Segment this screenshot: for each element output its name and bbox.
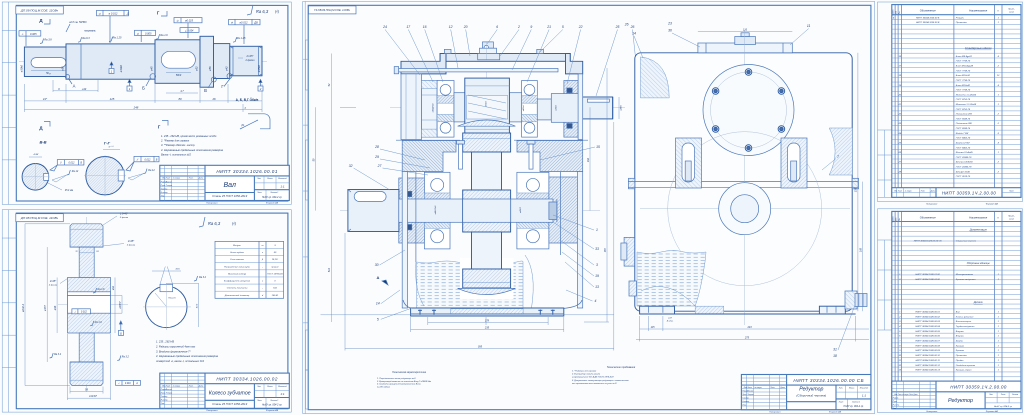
- svg-text:н2.8 тв. 50HRC: н2.8 тв. 50HRC: [69, 21, 87, 24]
- svg-text:Лист: Лист: [1008, 191, 1014, 193]
- svg-text:Ra 6,3: Ra 6,3: [256, 9, 269, 14]
- svg-text:1:1: 1:1: [280, 184, 285, 188]
- svg-text:4. Неуказанные предельные откл: 4. Неуказанные предельные отклонения раз…: [161, 148, 224, 152]
- svg-text:235: 235: [484, 327, 490, 330]
- svg-text:Редуктор: Редуктор: [799, 386, 823, 392]
- svg-text:2. Радиусы скруглений 4мм max: 2. Радиусы скруглений 4мм max: [155, 344, 196, 348]
- svg-text:ø35к6: ø35к6: [556, 104, 558, 110]
- svg-text:НибУ гр. 004-2 гр: НибУ гр. 004-2 гр: [844, 405, 864, 408]
- svg-text:ГОСТ 13755-81: ГОСТ 13755-81: [267, 273, 283, 275]
- svg-text:Утв.: Утв.: [161, 195, 165, 197]
- svg-text:16: 16: [423, 25, 427, 29]
- svg-text:ø232.2: ø232.2: [21, 303, 25, 312]
- svg-text:НибУ гр. 004-2 гр: НибУ гр. 004-2 гр: [262, 404, 282, 407]
- svg-text:Стандартные изделия: Стандартные изделия: [965, 47, 992, 50]
- svg-text:Т.контр.: Т.контр.: [161, 396, 168, 398]
- svg-text:Иванов: Иванов: [747, 391, 753, 393]
- svg-text:Техническая характеристика: Техническая характеристика: [392, 371, 427, 374]
- svg-text:Вал: Вал: [223, 182, 235, 189]
- svg-text://: //: [59, 161, 62, 165]
- svg-text:Число зубьев: Число зубьев: [230, 252, 245, 254]
- svg-text:НИПТ 30359.1Ч.2.00.00: НИПТ 30359.1Ч.2.00.00: [950, 385, 1007, 390]
- svg-text:(Сборочный чертеж): (Сборочный чертеж): [796, 393, 826, 397]
- svg-text:115: 115: [651, 326, 655, 329]
- svg-text:НИПТ 30334.1026.00.08: НИПТ 30334.1026.00.08: [916, 344, 941, 347]
- svg-text:В: В: [204, 88, 207, 93]
- svg-text:Листов 1: Листов 1: [269, 400, 278, 402]
- svg-text:5: 5: [377, 317, 379, 321]
- svg-text:Прокладка: Прокладка: [956, 21, 968, 24]
- svg-text:нагревань: нагревань: [84, 30, 96, 33]
- svg-text:НИПТ 30334.1026.00.11: НИПТ 30334.1026.00.11: [916, 359, 941, 362]
- svg-text:ø52: ø52: [195, 66, 199, 71]
- svg-text:Масса: Масса: [267, 386, 272, 388]
- svg-text:26: 26: [211, 97, 216, 101]
- svg-text:5⁺⁰˙²: 5⁺⁰˙²: [109, 146, 114, 149]
- svg-text:⊥: ⊥: [118, 382, 120, 385]
- svg-text:2×45°: 2×45°: [246, 54, 254, 58]
- svg-text:НИПТ 30334.1026.00 В: НИПТ 30334.1026.00 В: [916, 21, 940, 24]
- svg-text:ø 0.012: ø 0.012: [109, 12, 118, 16]
- svg-text:248: 248: [133, 106, 139, 110]
- svg-text:Ra 1.6: Ra 1.6: [160, 34, 168, 37]
- svg-text:Коэффициент смещения: Коэффициент смещения: [224, 280, 251, 283]
- svg-text:НИПТ 30334.1026.00.09: НИПТ 30334.1026.00.09: [916, 349, 941, 352]
- svg-text:Ra 1.6: Ra 1.6: [95, 321, 103, 324]
- svg-text:17: 17: [406, 25, 410, 29]
- svg-text:14: 14: [632, 32, 636, 36]
- svg-text:Ra 3.2: Ra 3.2: [54, 353, 62, 356]
- svg-text:Исходный контур: Исходный контур: [228, 272, 247, 275]
- svg-text:Подп.: Подп.: [189, 385, 194, 388]
- svg-text:НИПТ 30334.1026.00.01: НИПТ 30334.1026.00.01: [916, 310, 941, 313]
- svg-text:2 фаски: 2 фаски: [126, 243, 136, 246]
- svg-text:25: 25: [615, 25, 620, 29]
- svg-text:НибУ гр. 004-2 гр: НибУ гр. 004-2 гр: [994, 405, 1013, 408]
- svg-text:2 фаски: 2 фаски: [119, 216, 129, 219]
- svg-text:ø96: ø96: [53, 305, 57, 310]
- svg-text:Ra 12: Ra 12: [148, 169, 155, 172]
- svg-text:1. 235...262 HB, кроме мест ук: 1. 235...262 HB, кроме мест указанных ос…: [161, 134, 217, 138]
- svg-text:Копировал: Копировал: [926, 411, 938, 413]
- svg-text:Маслоуказатель: Маслоуказатель: [956, 274, 974, 276]
- svg-text:1:1: 1:1: [280, 392, 285, 396]
- svg-text:335: 335: [855, 187, 858, 192]
- svg-text:Болт М8-6gх22: Болт М8-6gх22: [956, 56, 973, 58]
- svg-text:Дата: Дата: [198, 178, 204, 180]
- svg-text:Ra 1.25: Ra 1.25: [237, 37, 246, 40]
- svg-text:ГОСТ 7798-70: ГОСТ 7798-70: [956, 70, 971, 72]
- svg-text:Болт М10-6gх28: Болт М10-6gх28: [956, 66, 974, 68]
- svg-text:13: 13: [595, 285, 599, 289]
- svg-text:21: 21: [546, 25, 551, 29]
- svg-text:правое: правое: [271, 266, 279, 268]
- svg-text:Лит.: Лит.: [988, 394, 993, 396]
- svg-text:0.012: 0.012: [145, 159, 152, 162]
- svg-text:Втулка: Втулка: [956, 331, 965, 333]
- svg-text:0.005: 0.005: [145, 31, 152, 35]
- svg-text:3. Допускается эксплуатация ре: 3. Допускается эксплуатация редуктора с …: [572, 379, 629, 382]
- svg-text:Наименование: Наименование: [969, 9, 987, 13]
- svg-text:Б: Б: [142, 86, 145, 91]
- svg-text:НИПТ 30334.1026.00.04: НИПТ 30334.1026.00.04: [916, 325, 941, 328]
- svg-text:отверстий +t, валов -t, осталь: отверстий +t, валов -t, остальных ±t/2: [156, 359, 205, 363]
- svg-text:Ra 1.6: Ra 1.6: [97, 288, 105, 291]
- svg-text:Модуль: Модуль: [233, 244, 242, 247]
- svg-text:ø48Н7/к6: ø48Н7/к6: [434, 205, 437, 215]
- svg-text:Т.контр.: Т.контр.: [742, 398, 749, 400]
- svg-text:А, Б, В,Г Ӧ6к/в: А, Б, В,Г Ӧ6к/в: [236, 97, 259, 102]
- svg-text:ø50к6: ø50к6: [486, 100, 488, 106]
- svg-text:⊥: ⊥: [21, 32, 24, 36]
- svg-text:275: 275: [744, 336, 750, 339]
- svg-text:Болт М12х32: Болт М12х32: [956, 75, 971, 77]
- svg-text:НИПТ 30334.1026.00.05: НИПТ 30334.1026.00.05: [916, 330, 941, 333]
- svg-text:ø42: ø42: [225, 66, 229, 71]
- svg-text:чание: чание: [1009, 218, 1014, 220]
- svg-text://: //: [136, 158, 139, 162]
- svg-text:ø92: ø92: [112, 285, 115, 290]
- svg-text:Б: Б: [120, 331, 122, 335]
- svg-text:2 фаски: 2 фаски: [245, 59, 256, 62]
- svg-text:Направление линии зуба: Направление линии зуба: [224, 266, 250, 268]
- svg-text:Крышка: Крышка: [956, 345, 965, 347]
- svg-text:12: 12: [449, 25, 453, 29]
- svg-text:А: А: [135, 382, 138, 385]
- svg-text:2×45°: 2×45°: [49, 280, 56, 283]
- svg-text:Угол наклона: Угол наклона: [230, 259, 245, 261]
- svg-text:Г: Г: [157, 11, 160, 16]
- svg-text:385: 385: [478, 345, 483, 348]
- svg-text:80: 80: [178, 97, 182, 101]
- svg-text:m: m: [262, 245, 264, 247]
- svg-text:Крышка глухая: Крышка глухая: [956, 370, 972, 372]
- svg-text:Подшипник 209: Подшипник 209: [956, 113, 973, 116]
- svg-text:Шайба: Шайба: [956, 340, 964, 343]
- svg-text:Н.контр.: Н.контр.: [161, 400, 169, 402]
- svg-text:26: 26: [630, 25, 635, 29]
- svg-text:Петров: Петров: [166, 393, 172, 395]
- svg-text:26: 26: [624, 23, 629, 27]
- svg-text:2. *Размер для справок: 2. *Размер для справок: [160, 139, 190, 143]
- svg-text:Приме-: Приме-: [1008, 9, 1015, 11]
- svg-text:50₍₃₎: 50₍₃₎: [46, 72, 51, 75]
- svg-text:Шайба 7 65Г: Шайба 7 65Г: [956, 132, 970, 135]
- svg-text:Отбойная крышка: Отбойная крышка: [956, 364, 976, 367]
- svg-text:β1: β1: [241, 123, 245, 127]
- svg-text:243: 243: [747, 326, 753, 329]
- svg-text:ø28k6: ø28k6: [621, 104, 623, 110]
- svg-text:Дата: Дата: [930, 190, 935, 192]
- svg-text:Лист: Лист: [746, 387, 752, 389]
- svg-text:Пробка: Пробка: [956, 360, 964, 362]
- svg-text:3. **Размер обеспеч. инстр.: 3. **Размер обеспеч. инстр.: [161, 143, 195, 147]
- svg-text:Дата: Дата: [779, 387, 785, 389]
- svg-text:0.016: 0.016: [125, 383, 131, 385]
- svg-text:110.67: 110.67: [89, 394, 97, 398]
- svg-text:Приме-: Приме-: [1008, 215, 1015, 217]
- svg-text:11: 11: [807, 24, 811, 28]
- svg-text:НИПТ 30359.1Ч.2.00.00: НИПТ 30359.1Ч.2.00.00: [942, 191, 997, 196]
- svg-text:Утв.: Утв.: [893, 408, 897, 410]
- svg-text:Иванов: Иванов: [166, 389, 172, 391]
- svg-text:Сталь 45 ГОСТ 1050-2013: Сталь 45 ГОСТ 1050-2013: [212, 194, 247, 198]
- svg-text:НИПТ 30334.1026.00.06: НИПТ 30334.1026.00.06: [916, 335, 941, 338]
- svg-text:Г3.ОВ.09.ПОЦ.М.СОЕ. 11ОВч: Г3.ОВ.09.ПОЦ.М.СОЕ. 11ОВч: [314, 8, 350, 12]
- svg-text:Сборочный чертеж: Сборочный чертеж: [956, 240, 977, 243]
- svg-text:Болт М12х42: Болт М12х42: [956, 84, 971, 87]
- svg-text:1. Передаточное число редуктор: 1. Передаточное число редуктора u=3: [377, 377, 416, 380]
- svg-text:ø0.025: ø0.025: [185, 19, 194, 23]
- svg-text:14: 14: [376, 302, 380, 306]
- svg-text:Обозначение: Обозначение: [920, 9, 936, 13]
- svg-text:Редукт.: Редукт.: [956, 16, 965, 19]
- svg-text:Манжета 1.1-35х58: Манжета 1.1-35х58: [956, 104, 977, 106]
- svg-text:Утв.: Утв.: [742, 405, 746, 407]
- svg-text:22: 22: [578, 25, 583, 29]
- svg-text:Штифт 8х30: Штифт 8х30: [956, 170, 971, 173]
- svg-text:от горизонтального положения н: от горизонтального положения на угол до …: [572, 382, 617, 385]
- svg-text:3: 3: [596, 263, 598, 267]
- svg-text:9: 9: [530, 25, 532, 29]
- svg-text:Т.контр.: Т.контр.: [161, 188, 168, 190]
- svg-text:Детали: Детали: [973, 301, 984, 304]
- svg-text:2 фаски: 2 фаски: [48, 283, 58, 286]
- svg-text:Копировал: Копировал: [770, 411, 782, 413]
- svg-text:18: 18: [833, 354, 837, 358]
- svg-text:Подп.: Подп.: [189, 177, 194, 180]
- svg-text:19: 19: [595, 274, 599, 278]
- svg-text:Обозначение: Обозначение: [920, 215, 936, 219]
- svg-text:8-В: 8-В: [273, 288, 277, 290]
- svg-text:0.012: 0.012: [81, 311, 88, 314]
- svg-text:4. Неуказанные предельные откл: 4. Неуказанные предельные отклонения раз…: [156, 354, 219, 358]
- svg-text:Масса: Масса: [267, 178, 272, 180]
- svg-text:Формат A4: Формат A4: [829, 410, 842, 413]
- svg-text:Г-Г: Г-Г: [104, 141, 111, 146]
- svg-text:Лит.: Лит.: [256, 386, 262, 388]
- svg-text:Лист: Лист: [1000, 394, 1006, 396]
- svg-text:Степень точности: Степень точности: [227, 288, 248, 290]
- svg-text:3. Впадины формовочные 7°: 3. Впадины формовочные 7°: [156, 349, 191, 353]
- svg-text:Формат A4: Формат A4: [986, 410, 999, 413]
- svg-text:Листов 1: Листов 1: [269, 192, 278, 194]
- svg-text:НИПТ 30334.1026.01.00: НИПТ 30334.1026.01.00: [916, 273, 941, 276]
- svg-text:Rmax 6: Rmax 6: [168, 298, 176, 300]
- svg-text:27: 27: [377, 164, 382, 168]
- svg-text:≤43: ≤43: [82, 87, 87, 91]
- svg-text:Сборочные единицы: Сборочные единицы: [967, 262, 990, 265]
- svg-text:155.51: 155.51: [272, 295, 279, 297]
- svg-text:ДВ: ДВ: [253, 21, 258, 25]
- svg-text:ГОСТ 8338-75: ГОСТ 8338-75: [956, 128, 971, 130]
- svg-text:Иванов: Иванов: [166, 181, 172, 183]
- svg-text:Документация: Документация: [969, 228, 988, 231]
- svg-text:Листов 1: Листов 1: [851, 401, 860, 403]
- svg-text:Ra 3.2: Ra 3.2: [122, 356, 130, 359]
- svg-text:29: 29: [374, 155, 379, 159]
- svg-text:Ra 6.3: Ra 6.3: [82, 37, 90, 40]
- svg-text:НИПТ 30334.1026.02.00: НИПТ 30334.1026.02.00: [916, 278, 941, 281]
- svg-text:Колесо зубчатое: Колесо зубчатое: [209, 391, 251, 397]
- svg-text:А: А: [73, 84, 76, 89]
- svg-text:30: 30: [668, 29, 672, 33]
- svg-text:ø45: ø45: [150, 66, 154, 71]
- svg-text:5: 5: [562, 25, 564, 29]
- svg-text:Ra 12: Ra 12: [72, 170, 79, 173]
- svg-text:НИПТ 30334.1026.00.03: НИПТ 30334.1026.00.03: [916, 320, 941, 323]
- svg-text:Прокладка: Прокладка: [956, 354, 968, 357]
- svg-text:ГОСТ 7798-70: ГОСТ 7798-70: [956, 90, 971, 92]
- svg-text:Н.контр.: Н.контр.: [893, 405, 900, 407]
- svg-text:ГОСТ 23360-78: ГОСТ 23360-78: [956, 157, 972, 159]
- svg-text:Колесо зубчатое: Колесо зубчатое: [956, 316, 974, 318]
- svg-text:Формат A4: Формат A4: [986, 202, 999, 205]
- svg-text:1. 235...262 HB: 1. 235...262 HB: [156, 340, 174, 344]
- svg-text:НИПТ 30334.1026.00.01: НИПТ 30334.1026.00.01: [216, 169, 278, 174]
- svg-text:ГОСТ 6402-70: ГОСТ 6402-70: [956, 146, 971, 149]
- svg-text:ГОСТ 8752-79: ГОСТ 8752-79: [956, 99, 971, 101]
- svg-text:Петров: Петров: [166, 185, 172, 187]
- svg-text:Масштаб: Масштаб: [860, 387, 869, 389]
- svg-text:Лист: Лист: [256, 400, 262, 402]
- svg-text:16,15°: 16,15°: [272, 259, 278, 261]
- svg-text:Масштаб: Масштаб: [278, 178, 287, 180]
- svg-text:Н.контр.: Н.контр.: [161, 192, 169, 194]
- svg-text:Ra 1.25: Ra 1.25: [113, 37, 122, 40]
- svg-text:2. В редуктор залить масло: 2. В редуктор залить масло: [571, 373, 601, 376]
- svg-text:178: 178: [485, 320, 490, 323]
- svg-text:№ докум.: № докум.: [173, 385, 181, 388]
- svg-text:ГОСТ 6402-70: ГОСТ 6402-70: [956, 137, 971, 140]
- svg-text:ø35k6: ø35k6: [257, 64, 261, 72]
- svg-text:50h9: 50h9: [176, 74, 182, 77]
- svg-text:Сталь 45 ГОСТ 1050-2013: Сталь 45 ГОСТ 1050-2013: [212, 402, 247, 406]
- svg-text:Утв.: Утв.: [161, 403, 165, 405]
- svg-text:ГОСТ 8752-79: ГОСТ 8752-79: [956, 109, 971, 111]
- svg-text:ГОСТ 7798-70: ГОСТ 7798-70: [956, 61, 971, 63]
- svg-text:2. Вращающий момент на выходно: 2. Вращающий момент на выходном Валу Т=2…: [376, 380, 432, 383]
- svg-text:2: 2: [517, 25, 520, 29]
- svg-text:НИПТ 30334.1026.00.02: НИПТ 30334.1026.00.02: [916, 315, 941, 318]
- svg-text:∠ 0.004: ∠ 0.004: [185, 29, 194, 32]
- svg-text:НИПТ 30334.1026.00 Б: НИПТ 30334.1026.00 Б: [916, 16, 940, 19]
- svg-text:24: 24: [382, 25, 387, 29]
- svg-text:Лит.: Лит.: [838, 387, 844, 389]
- svg-text:Технические требования: Технические требования: [607, 366, 636, 369]
- svg-text:Масштаб: Масштаб: [278, 386, 287, 388]
- svg-text:Копировал: Копировал: [207, 202, 219, 204]
- svg-text:ø36: ø36: [61, 66, 65, 71]
- svg-text:НИПТ 30334.1026.00.10: НИПТ 30334.1026.00.10: [916, 354, 941, 357]
- svg-text:Зона: Зона: [896, 218, 898, 222]
- svg-text:ø187: ø187: [43, 304, 47, 310]
- svg-text:ø40k6: ø40k6: [119, 64, 123, 72]
- svg-text:Шпонка 14х9х50: Шпонка 14х9х50: [956, 161, 974, 164]
- svg-text:Масса: Масса: [849, 387, 854, 389]
- svg-text:Г: Г: [158, 125, 161, 130]
- svg-text:Шпонка 12х8х45: Шпонка 12х8х45: [956, 151, 974, 154]
- svg-text:ø0.012: ø0.012: [239, 21, 248, 25]
- svg-text:Ra 3.8: Ra 3.8: [44, 39, 52, 42]
- svg-text:15: 15: [596, 145, 600, 149]
- svg-text:НИПТ 30334.1026.00.00 СБ: НИПТ 30334.1026.00.00 СБ: [793, 378, 864, 383]
- svg-text:32: 32: [349, 164, 353, 168]
- svg-text:2×45°: 2×45°: [127, 240, 134, 243]
- svg-text:1. *Размеры для справок: 1. *Размеры для справок: [572, 370, 597, 373]
- svg-text:387: 387: [604, 247, 607, 252]
- svg-text:125: 125: [110, 97, 115, 101]
- svg-text:В-В: В-В: [39, 140, 46, 145]
- svg-text:116: 116: [743, 29, 748, 32]
- svg-text:ГОСТ 8338-75: ГОСТ 8338-75: [956, 118, 971, 120]
- svg-text:4: 4: [595, 299, 597, 303]
- svg-text:ГОСТ 7798-70: ГОСТ 7798-70: [956, 80, 971, 82]
- svg-text:Копировал: Копировал: [207, 410, 219, 412]
- svg-text:Копировал: Копировал: [926, 203, 938, 205]
- svg-text:Шайба 12 65Г: Шайба 12 65Г: [956, 141, 971, 144]
- svg-text:Зона: Зона: [896, 11, 898, 15]
- svg-text:ø48H7: ø48H7: [119, 301, 122, 309]
- svg-text:512: 512: [328, 267, 331, 272]
- svg-text:Д: Д: [126, 12, 129, 16]
- svg-text:Н.контр.: Н.контр.: [742, 401, 750, 403]
- svg-text:НИПТ 30334.1026.00.07: НИПТ 30334.1026.00.07: [916, 340, 941, 343]
- svg-text:4°45ʹ: 4°45ʹ: [34, 153, 40, 156]
- svg-text:Пров.: Пров.: [893, 401, 898, 403]
- svg-text:Втулка: Втулка: [956, 336, 965, 338]
- svg-text:НибУ гр. 004-2 гр: НибУ гр. 004-2 гр: [262, 196, 282, 199]
- svg-text:чание: чание: [1009, 12, 1014, 14]
- svg-text:1.5×45°: 1.5×45°: [120, 213, 128, 216]
- svg-text:3. Частота вращения Быстроходн: 3. Частота вращения Быстроходного Вала: [377, 383, 421, 386]
- svg-text:ДП.08.ПОЦ.М.СОЕ. 11ОВч: ДП.08.ПОЦ.М.СОЕ. 11ОВч: [20, 216, 59, 220]
- svg-text:№ докум.: № докум.: [173, 177, 181, 180]
- svg-text:НИПТ 30334.1026.00.02: НИПТ 30334.1026.00.02: [216, 377, 278, 382]
- svg-text:6: 6: [496, 25, 498, 29]
- svg-text:Формат A4: Формат A4: [266, 409, 279, 412]
- svg-text:162: 162: [587, 157, 590, 162]
- svg-text:Изм. Лист: Изм. Лист: [894, 190, 903, 192]
- svg-text:Манжета 1.1-45х65: Манжета 1.1-45х65: [956, 93, 977, 96]
- svg-text:Крышка: Крышка: [956, 350, 965, 352]
- svg-text:Формат A4: Формат A4: [266, 201, 279, 204]
- svg-text:ø40Д7/д4: ø40Д7/д4: [432, 103, 435, 113]
- svg-text:№ докум.: № докум.: [754, 386, 762, 389]
- svg-text:Наименование: Наименование: [969, 215, 987, 219]
- svg-text:Лит.: Лит.: [256, 178, 262, 180]
- svg-text:4 отв.: 4 отв.: [667, 320, 674, 323]
- svg-text:30: 30: [375, 263, 379, 267]
- svg-text:23: 23: [667, 22, 672, 26]
- svg-text:Делительный диаметр: Делительный диаметр: [224, 294, 250, 297]
- svg-text:Крышка-отдушина: Крышка-отдушина: [956, 278, 976, 281]
- svg-text:НИПТ 30334.1026.00.13: НИПТ 30334.1026.00.13: [916, 369, 941, 372]
- svg-text:Подшипник 306: Подшипник 306: [956, 122, 973, 125]
- svg-text:(√): (√): [232, 222, 236, 226]
- svg-text:33: 33: [595, 247, 599, 251]
- svg-text:Лист: Лист: [165, 178, 171, 180]
- svg-text:ДП.09.ПОЦ.М.СОЕ. 11ОВч: ДП.09.ПОЦ.М.СОЕ. 11ОВч: [20, 8, 59, 12]
- svg-text:ГОСТ 23360-78: ГОСТ 23360-78: [956, 167, 972, 169]
- svg-text:31: 31: [833, 348, 837, 352]
- svg-text:0.005: 0.005: [30, 32, 37, 36]
- svg-text:n=720 об/мин: n=720 об/мин: [377, 386, 391, 388]
- svg-text:45.4 мм: 45.4 мм: [65, 189, 74, 192]
- svg-text:0.012: 0.012: [69, 162, 76, 165]
- svg-text:(√): (√): [275, 10, 279, 14]
- svg-text:Лист: Лист: [165, 386, 171, 388]
